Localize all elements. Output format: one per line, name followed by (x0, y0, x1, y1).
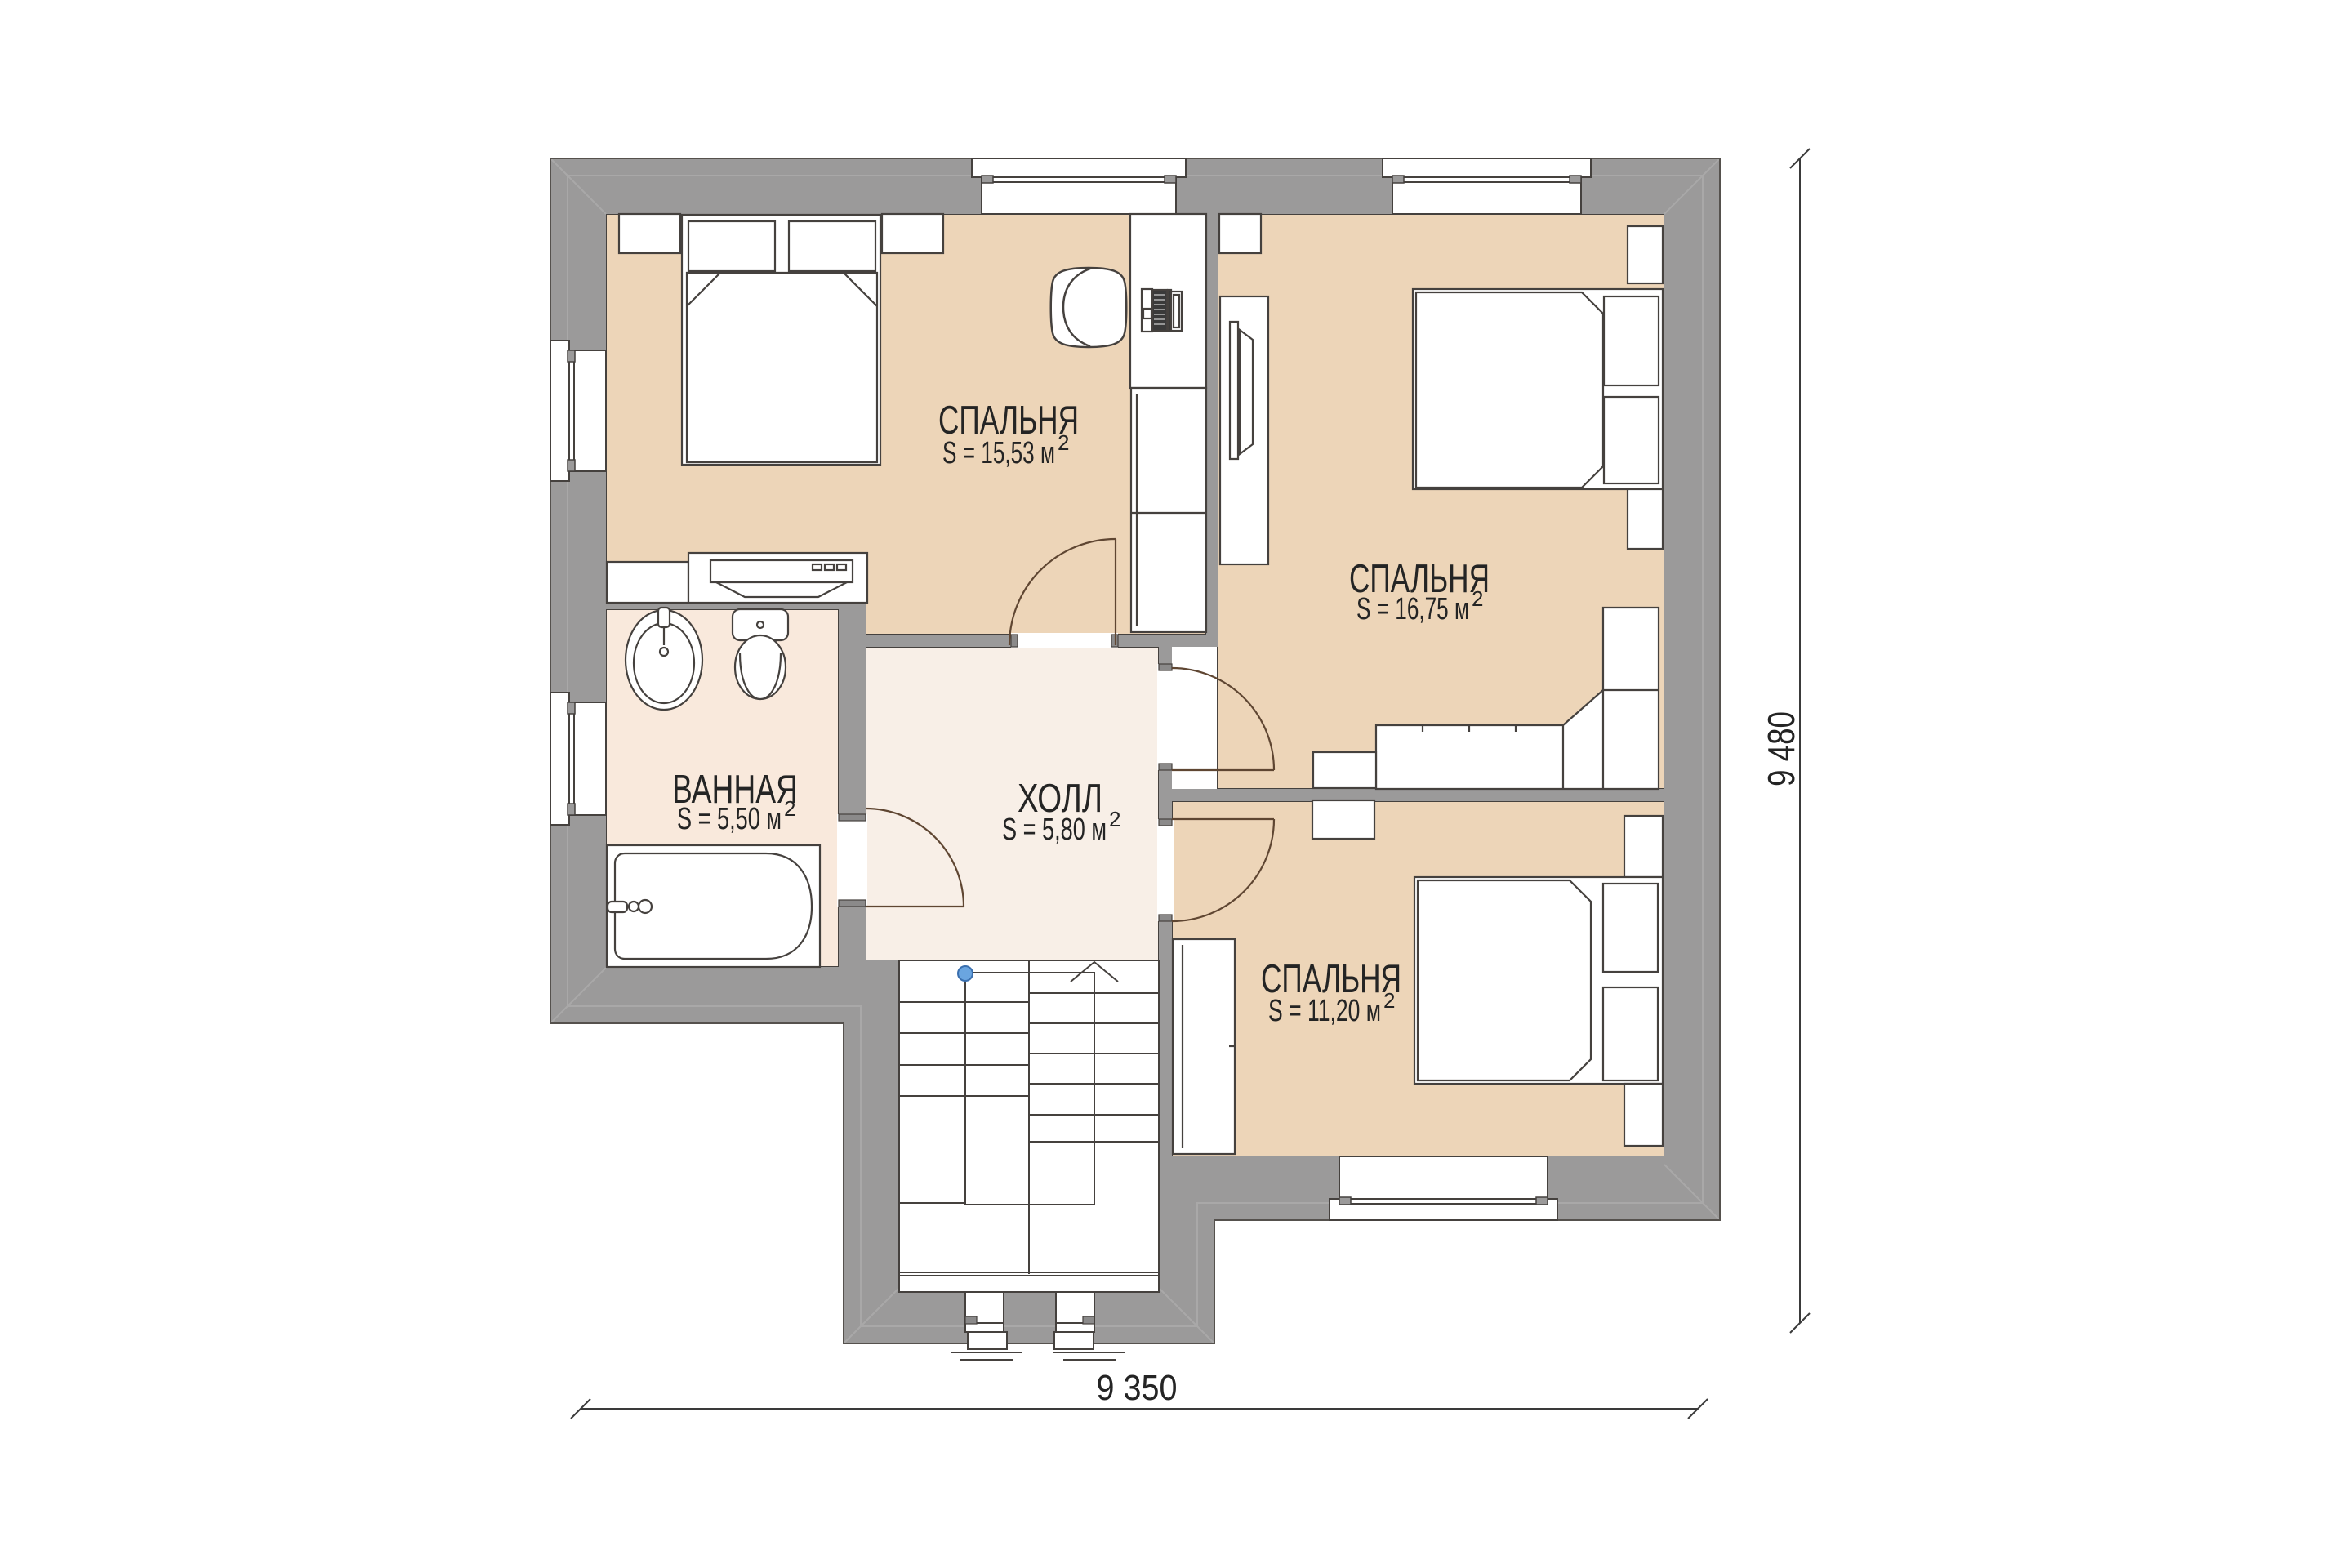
svg-text:9 480: 9 480 (1760, 711, 1802, 786)
svg-text:2: 2 (1383, 988, 1395, 1013)
svg-text:S = 16,75 м: S = 16,75 м (1356, 592, 1469, 626)
svg-text:S = 15,53 м: S = 15,53 м (942, 436, 1055, 470)
svg-text:2: 2 (1058, 430, 1069, 455)
svg-text:S = 5,80 м: S = 5,80 м (1002, 813, 1107, 847)
svg-text:9 350: 9 350 (1097, 1368, 1178, 1408)
svg-text:S = 11,20 м: S = 11,20 м (1268, 994, 1381, 1028)
svg-text:2: 2 (1109, 807, 1120, 831)
svg-text:2: 2 (784, 796, 795, 821)
svg-text:2: 2 (1472, 586, 1483, 611)
svg-text:S = 5,50 м: S = 5,50 м (677, 802, 782, 836)
